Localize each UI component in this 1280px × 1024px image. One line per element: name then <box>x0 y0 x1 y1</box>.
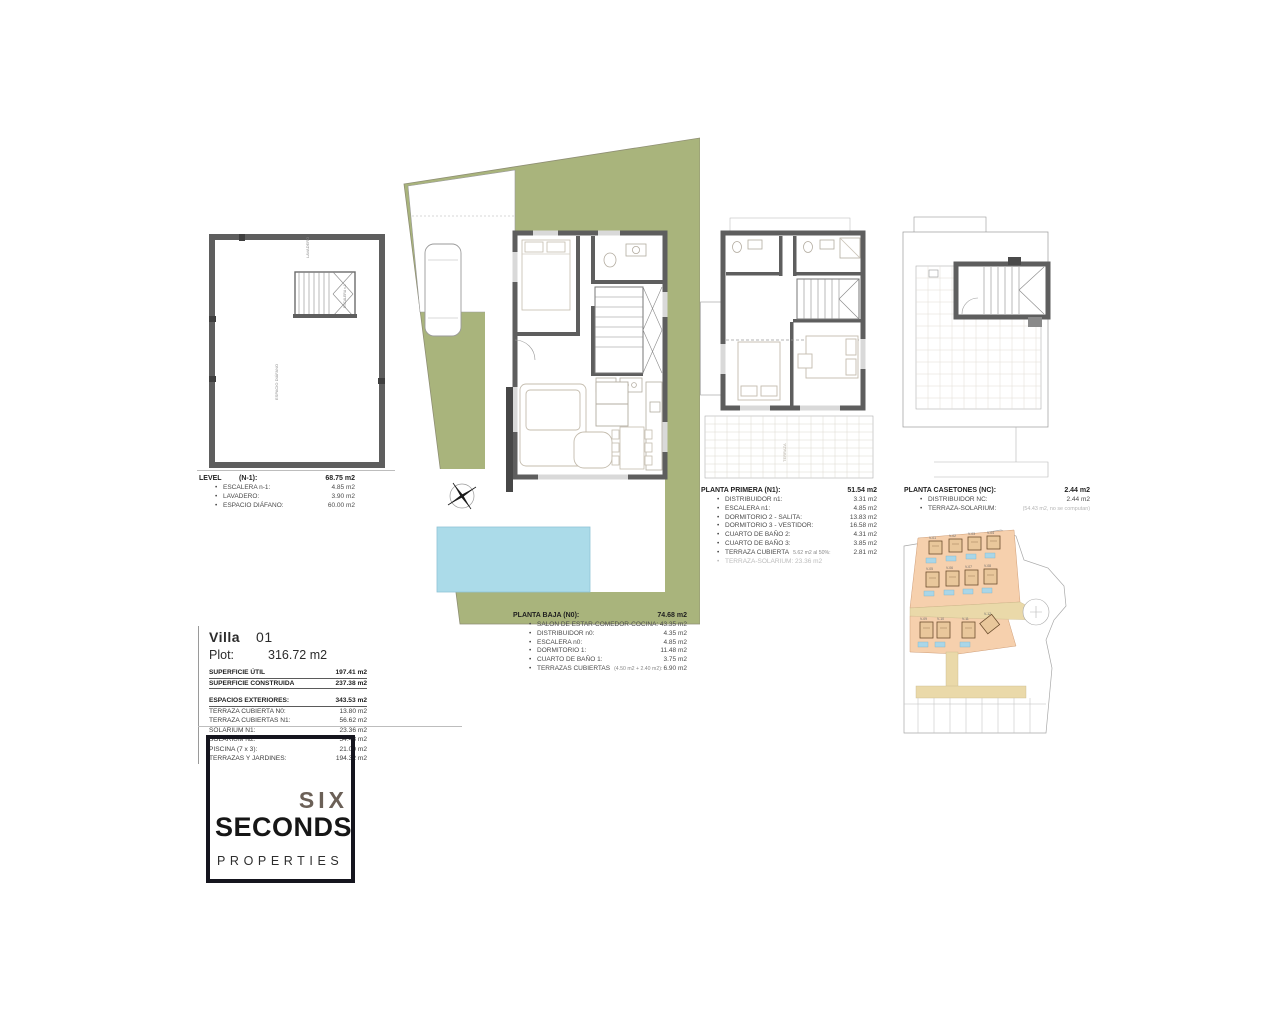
schedule-row: ESCALERA n-1:4.85 m2 <box>199 484 355 493</box>
schedule-row: SALON DE ESTAR-COMEDOR-COCINA:43.35 m2 <box>513 621 687 630</box>
plan-sheet: LAVADERO ESCALERA n-1 ESPACIO DIÁFANO LE… <box>0 0 1280 1024</box>
villa-label: V-01 <box>929 536 936 540</box>
villa-label: V-03 <box>968 532 975 536</box>
schedule-row: DISTRIBUIDOR NC:2.44 m2 <box>904 496 1090 505</box>
basement-floor-plan: LAVADERO ESCALERA n-1 ESPACIO DIÁFANO <box>205 228 390 472</box>
schedule-row: TERRAZA-SOLARIUM: 23.36 m2 <box>701 558 877 567</box>
casetones-total: 2.44 m2 <box>1064 486 1090 496</box>
casetones-header: PLANTA CASETONES (NC): 2.44 m2 <box>904 486 1090 496</box>
level-n1-code: (N-1): <box>239 474 257 484</box>
stair-caseton <box>956 257 1048 327</box>
schedule-row: CUARTO DE BAÑO 3:3.85 m2 <box>701 540 877 549</box>
road-horizontal <box>916 686 1026 698</box>
basement-room-label: ESPACIO DIÁFANO <box>274 364 279 400</box>
company-logo: SIX SECONDS PROPERTIES <box>206 735 355 883</box>
summary-row: SUPERFICIE CONSTRUIDA237.38 m2 <box>209 679 367 690</box>
ground-floor-plan <box>506 233 665 492</box>
casetones-schedule: PLANTA CASETONES (NC): 2.44 m2 DISTRIBUI… <box>904 486 1090 514</box>
logo-properties: PROPERTIES <box>217 854 343 868</box>
schedule-row: TERRAZA CUBIERTA5.62 m2 al 50%:2.81 m2 <box>701 549 877 558</box>
level-n1-total: 68.75 m2 <box>325 474 355 484</box>
summary-row: TERRAZA CUBIERTAS N1:56.62 m2 <box>209 716 367 726</box>
planta-primera-schedule: PLANTA PRIMERA (N1): 51.54 m2 DISTRIBUID… <box>701 486 877 566</box>
villa-title: Villa01 <box>209 629 387 645</box>
first-floor-plan: TERRAZA <box>700 214 882 482</box>
planta-primera-header: PLANTA PRIMERA (N1): 51.54 m2 <box>701 486 877 496</box>
schedule-row: ESPACIO DIÁFANO:60.00 m2 <box>199 502 355 511</box>
level-n1-schedule: LEVEL (N-1): 68.75 m2 ESCALERA n-1:4.85 … <box>199 474 355 510</box>
villa-label: V-06 <box>946 566 953 570</box>
villa-label: V-10 <box>937 617 944 621</box>
villa-label: V-11 <box>962 617 969 621</box>
planta-primera-title: PLANTA PRIMERA (N1): <box>701 486 780 496</box>
schedule-row: TERRAZA-SOLARIUM:(54.43 m2, no se comput… <box>904 505 1090 514</box>
villa-label: V-02 <box>949 534 956 538</box>
villa-label: V-07 <box>965 565 972 569</box>
villa-label: V-08 <box>984 564 991 568</box>
schedule-row: CUARTO DE BAÑO 1:3.75 m2 <box>513 656 687 665</box>
level-n1-title: LEVEL <box>199 474 222 484</box>
schedule-row: TERRAZAS CUBIERTAS(4.50 m2 + 2.40 m2):6.… <box>513 665 687 674</box>
planta-baja-title: PLANTA BAJA (N0): <box>513 611 579 621</box>
site-plan <box>398 132 700 628</box>
casetones-title: PLANTA CASETONES (NC): <box>904 486 996 496</box>
site-map: V-01 V-02 V-03 V-04 V-05 V-06 V-07 V-08 … <box>896 528 1092 736</box>
pergola-strip <box>506 387 513 492</box>
kitchen-island <box>596 382 628 426</box>
villa-label: V-05 <box>926 567 933 571</box>
divider <box>197 470 395 471</box>
summary-row: ESPACIOS EXTERIORES:343.53 m2 <box>209 696 367 707</box>
logo-six: SIX <box>299 787 348 814</box>
swimming-pool <box>437 527 590 592</box>
schedule-row: ESCALERA n0:4.85 m2 <box>513 639 687 648</box>
planta-primera-total: 51.54 m2 <box>847 486 877 496</box>
casetones-plan <box>896 214 1088 482</box>
planta-baja-total: 74.68 m2 <box>657 611 687 621</box>
basement-stairs-label: ESCALERA n-1 <box>343 284 347 308</box>
divider <box>198 726 462 727</box>
car-outline <box>425 244 461 336</box>
level-n1-header: LEVEL (N-1): 68.75 m2 <box>199 474 355 484</box>
planta-baja-header: PLANTA BAJA (N0): 74.68 m2 <box>513 611 687 621</box>
villa-number: 01 <box>256 629 273 645</box>
schedule-row: LAVADERO:3.90 m2 <box>199 493 355 502</box>
logo-seconds: SECONDS <box>215 812 352 843</box>
schedule-row: DORMITORIO 3 - VESTIDOR:16.58 m2 <box>701 522 877 531</box>
villa-plot: Plot: 316.72 m2 <box>209 648 387 662</box>
summary-row: TERRAZA CUBIERTA N0:13.80 m2 <box>209 707 367 717</box>
villa-label: V-09 <box>920 617 927 621</box>
plot-label: Plot: <box>209 648 234 662</box>
schedule-row: CUARTO DE BAÑO 2:4.31 m2 <box>701 531 877 540</box>
schedule-row: DISTRIBUIDOR n1:3.31 m2 <box>701 496 877 505</box>
plot-value: 316.72 m2 <box>268 648 327 662</box>
basement-stairs <box>293 272 357 318</box>
roundabout <box>1023 599 1049 625</box>
planta-baja-schedule: PLANTA BAJA (N0): 74.68 m2 SALON DE ESTA… <box>513 611 687 674</box>
schedule-row: DORMITORIO 2 - SALITA:13.83 m2 <box>701 514 877 523</box>
schedule-row: ESCALERA n1:4.85 m2 <box>701 505 877 514</box>
villa-name: Villa <box>209 629 240 645</box>
basement-laundry-label: LAVADERO <box>305 237 310 258</box>
dining-table <box>612 427 652 469</box>
villa-label: V-12 <box>984 612 991 616</box>
terrace-label: TERRAZA <box>782 443 787 462</box>
terrace-hatch: TERRAZA <box>705 416 873 478</box>
schedule-row: DISTRIBUIDOR n0:4.35 m2 <box>513 630 687 639</box>
schedule-row: DORMITORIO 1:11.48 m2 <box>513 647 687 656</box>
summary-row: SUPERFICIE ÚTIL197.41 m2 <box>209 668 367 679</box>
villa-label: V-04 <box>987 531 994 535</box>
